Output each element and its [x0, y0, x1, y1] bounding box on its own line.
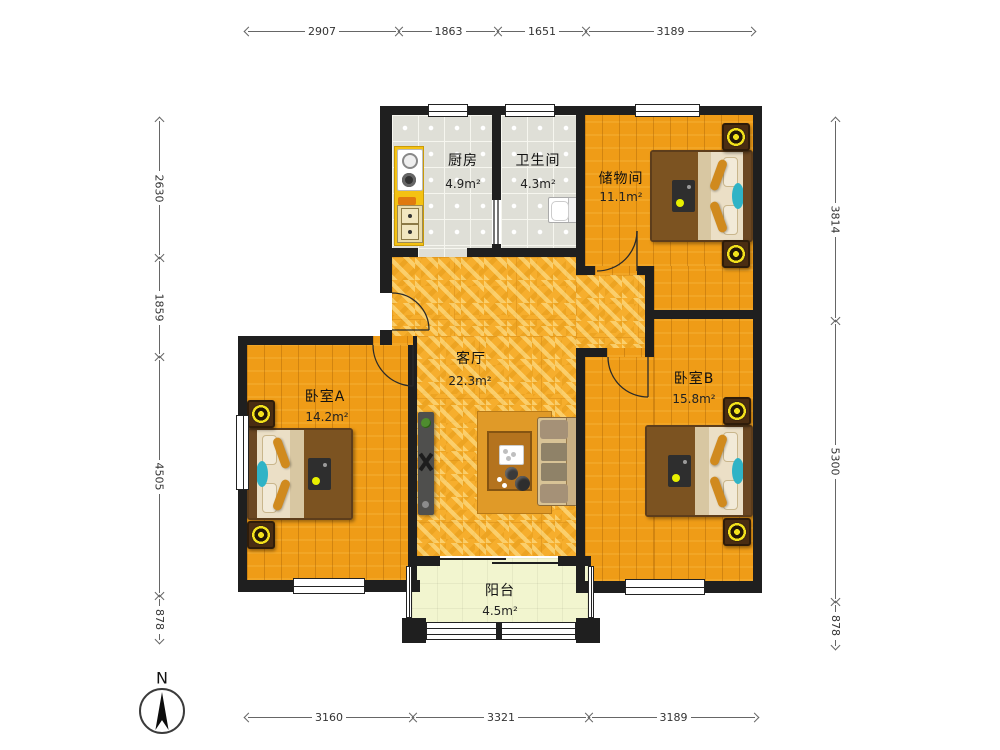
bathroom-area: 4.3m²	[520, 177, 556, 191]
bedroomB-floor-left	[585, 357, 654, 581]
wall-storage-bedroomB-divider	[645, 310, 762, 319]
kitchen-doorway-floor	[418, 248, 467, 257]
window-balcony-left	[406, 566, 412, 618]
window-kitchen-top	[428, 104, 468, 117]
wall-kitchen-bath-divider	[492, 106, 501, 200]
coffee-table	[487, 431, 532, 491]
dim-top-2: 1863	[399, 24, 498, 38]
arrow-left-icon	[244, 26, 254, 36]
wall-kitchen-bath-divider-stub	[492, 244, 501, 257]
wall-right-outer	[753, 106, 762, 593]
nightstand	[723, 518, 751, 546]
tray-icon	[499, 445, 524, 465]
wall-bedroomA-top	[238, 336, 373, 345]
wall-left-upper	[380, 106, 392, 293]
dim-top-4: 3189	[586, 24, 755, 38]
window-bedroomA-left	[236, 415, 249, 490]
dim-left-4: 878	[152, 596, 166, 643]
bathroom-door-leaf	[494, 200, 498, 244]
dim-top-1: 2907	[245, 24, 399, 38]
stove-icon	[397, 149, 423, 191]
balcony-post-right	[576, 618, 600, 643]
sofa	[537, 417, 578, 506]
window-bedroomA-bottom	[293, 578, 365, 594]
bedroomA-door-gap-floor	[373, 336, 413, 345]
dim-right-3: 878	[828, 602, 842, 649]
nightstand	[247, 400, 275, 428]
dim-right-2: 5300	[828, 321, 842, 602]
dim-bottom-2: 3321	[413, 710, 589, 724]
north-label: N	[156, 669, 168, 688]
dim-right-1: 3814	[828, 118, 842, 321]
nightstand	[722, 123, 750, 151]
wall-hallway-right	[645, 266, 654, 357]
toilet-icon	[548, 197, 577, 223]
sink-icon	[397, 205, 423, 243]
wall-left-upper-stub	[380, 330, 392, 345]
lamp-icon	[726, 127, 746, 147]
balcony-label: 阳台	[485, 580, 515, 600]
arrow-up-icon	[154, 117, 164, 127]
lamp-icon	[726, 244, 746, 264]
dim-bottom-1: 3160	[245, 710, 413, 724]
balcony-window-mid-post	[496, 622, 502, 640]
lamp-icon	[727, 522, 747, 542]
lamp-icon	[251, 404, 271, 424]
living-floor-upper	[392, 257, 576, 336]
storage-area: 11.1m²	[599, 190, 642, 204]
dim-left-1: 2630	[152, 118, 166, 258]
balcony-post-left	[402, 618, 426, 643]
lamp-icon	[251, 525, 271, 545]
bed-bedroomB	[645, 425, 753, 517]
dim-top-3: 1651	[498, 24, 586, 38]
wall-bath-bottom	[467, 248, 585, 257]
floorplan-canvas: 厨房 4.9m² 卫生间 4.3m² 储物间 11.1m² 客厅 22.3m² …	[0, 0, 1000, 750]
window-storage-top	[635, 104, 700, 117]
bedroomB-door-gap-floor	[607, 348, 648, 357]
nightstand	[722, 240, 750, 268]
bedroomA-label: 卧室A	[305, 386, 346, 406]
bedroomA-area: 14.2m²	[305, 410, 348, 424]
dim-left-2: 1859	[152, 258, 166, 357]
hallway-floor	[576, 275, 645, 348]
spice-rack-icon	[398, 197, 416, 205]
window-bedroomB-bottom	[625, 579, 705, 595]
plant-icon	[421, 418, 431, 428]
wall-bath-storage-divider	[576, 106, 585, 275]
bed-bedroomA	[247, 428, 353, 520]
pot-icon	[515, 476, 530, 491]
wall-living-bedroomB-divider	[576, 348, 585, 593]
dim-left-3: 4505	[152, 357, 166, 596]
window-bathroom-top	[505, 104, 555, 117]
kitchen-label: 厨房	[448, 150, 478, 170]
nightstand	[247, 521, 275, 549]
storage-floor-lower	[654, 266, 753, 310]
lamp-icon	[727, 401, 747, 421]
storage-door-gap-floor	[595, 266, 637, 275]
wall-bedroomA-living-divider	[408, 345, 417, 580]
wall-bedroomA-top-stub	[413, 336, 417, 345]
kitchen-area: 4.9m²	[445, 177, 481, 191]
kitchen-counter	[394, 146, 424, 246]
storage-label: 储物间	[599, 168, 644, 188]
bed-storage	[650, 150, 753, 242]
nightstand	[723, 397, 751, 425]
living-label: 客厅	[456, 348, 486, 368]
dim-bottom-3: 3189	[589, 710, 758, 724]
bedroomB-area: 15.8m²	[672, 392, 715, 406]
bathroom-label: 卫生间	[516, 150, 561, 170]
tv-console	[418, 412, 434, 515]
bedroomB-label: 卧室B	[674, 368, 715, 388]
living-area: 22.3m²	[448, 374, 491, 388]
window-balcony-right	[588, 566, 594, 618]
balcony-area: 4.5m²	[482, 604, 518, 618]
wall-balcony-stub-right	[558, 556, 591, 566]
